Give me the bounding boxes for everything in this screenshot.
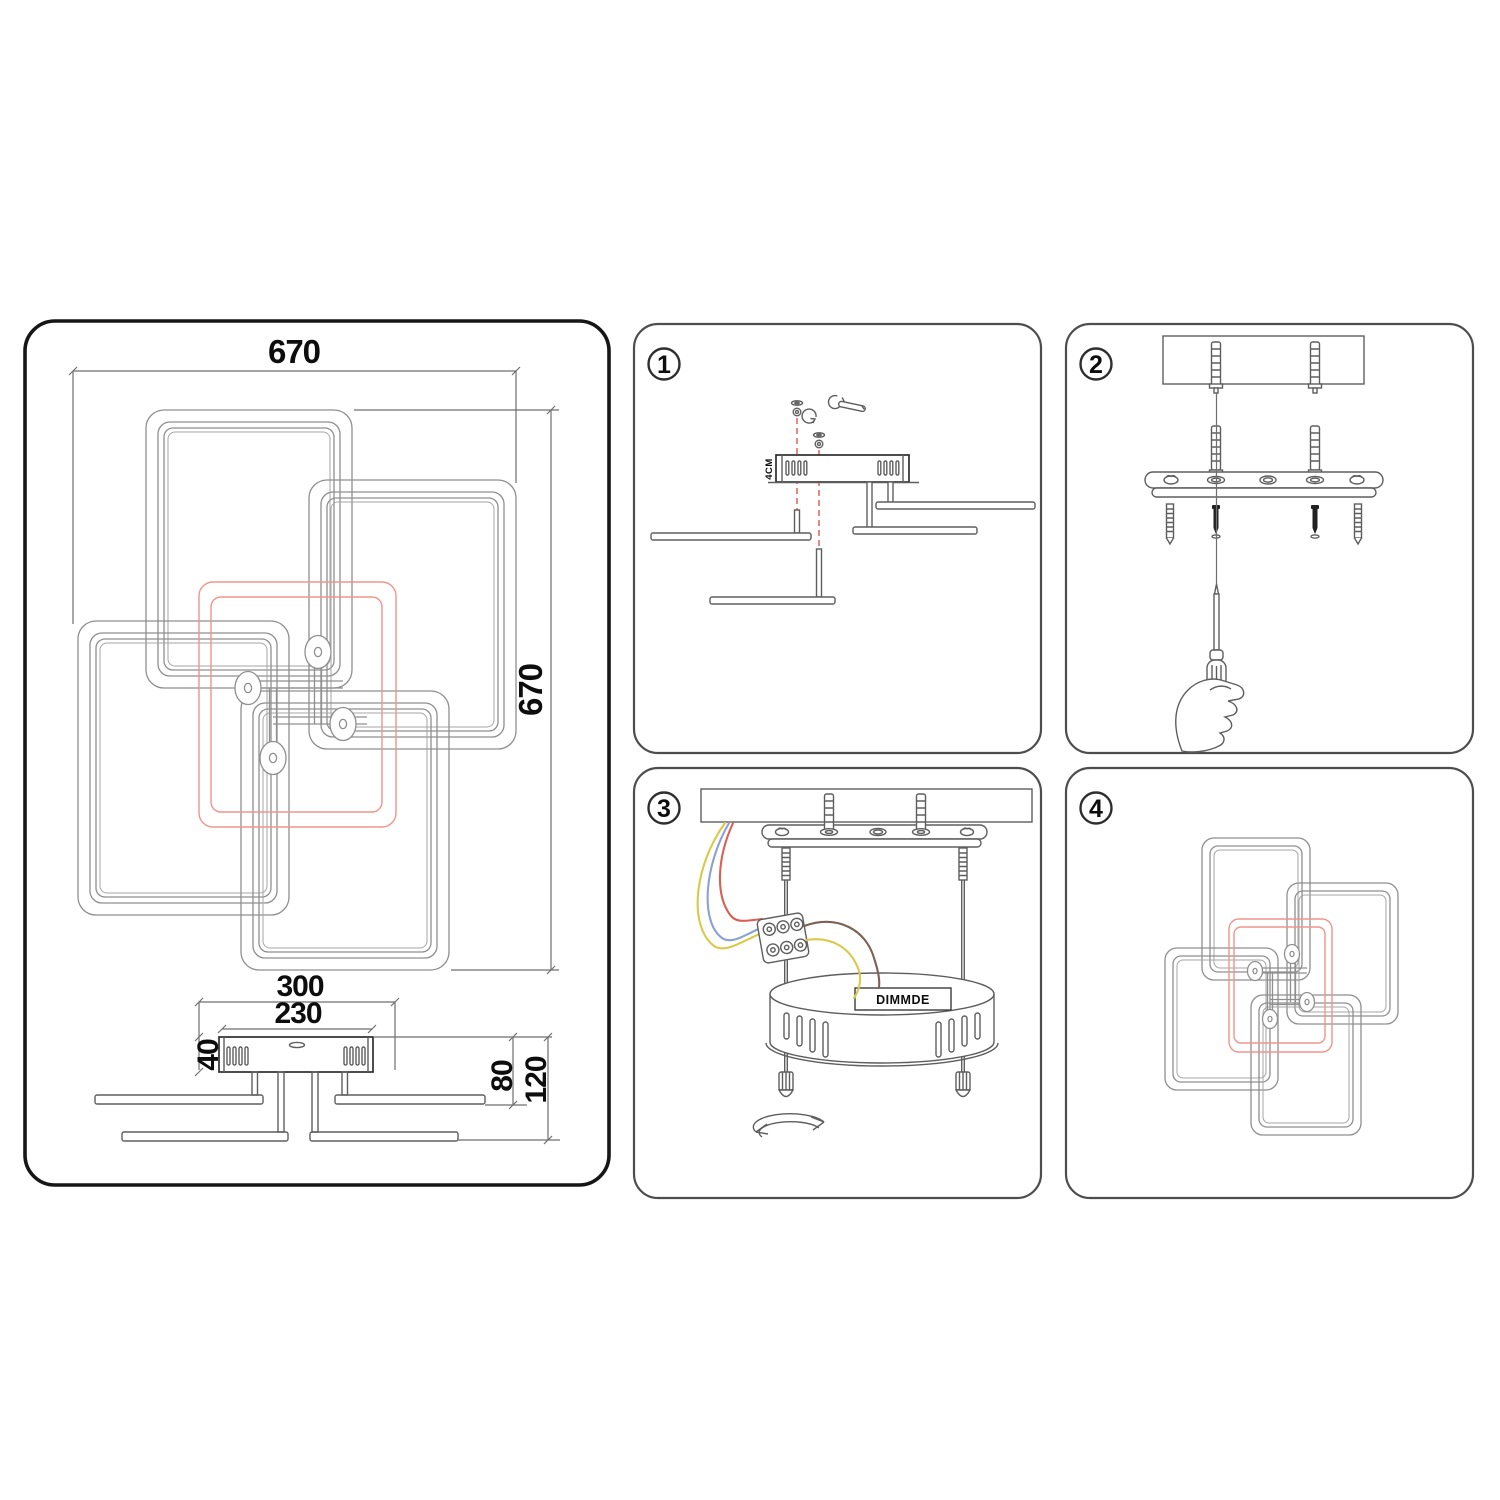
step-number-badge: 1: [649, 349, 680, 380]
threaded-studs: [1167, 504, 1362, 544]
wall-plug-dowels-loose: [1210, 426, 1322, 474]
panel-step-2: 2: [1064, 322, 1475, 755]
canopy-box: [219, 1037, 373, 1072]
side-view: 300 230 40: [95, 970, 560, 1144]
canopy-box: 4CM: [764, 455, 919, 483]
arms: [651, 482, 1035, 604]
instruction-sheet: 670 670: [0, 0, 1500, 1500]
mounting-bracket: [762, 794, 987, 847]
step-number-badge: 3: [649, 793, 680, 824]
wall-plug-dowels-ceiling: [1210, 342, 1322, 393]
dim-drop-lower-label: 120: [520, 1056, 553, 1103]
mounting-bracket: [1145, 472, 1383, 497]
cap-nuts: [779, 1072, 970, 1097]
dim-height-label: 670: [512, 664, 549, 716]
dim-canopy-label: 230: [274, 997, 321, 1030]
svg-text:3: 3: [657, 795, 671, 823]
screws: [1212, 505, 1319, 538]
arms-side-view: [95, 1072, 485, 1141]
panel-step-1: 1: [632, 322, 1043, 755]
svg-text:1: 1: [657, 351, 671, 379]
svg-text:2: 2: [1089, 351, 1103, 379]
step-number-badge: 2: [1081, 349, 1112, 380]
svg-text:4: 4: [1089, 795, 1103, 823]
driver-label: DIMMDE: [876, 993, 930, 1007]
dim-drop-upper-label: 80: [486, 1060, 519, 1092]
panel-step-4: 4: [1064, 766, 1475, 1200]
panel-dimensions: 670 670: [22, 318, 612, 1188]
ceiling: [701, 789, 1032, 822]
hand-icon: [1176, 679, 1244, 752]
canopy-depth-note: 4CM: [764, 458, 775, 480]
ceiling: [1163, 336, 1364, 384]
dim-width-label: 670: [268, 333, 320, 370]
supply-wires: [698, 823, 763, 948]
driver-canopy: DIMMDE: [766, 973, 998, 1066]
wrench-icon: [827, 392, 867, 415]
dimension-height: 670: [354, 406, 559, 974]
terminal-block: [757, 912, 810, 963]
step-number-badge: 4: [1081, 793, 1112, 824]
rotation-arrow-icon: [753, 1114, 824, 1137]
panel-step-3: 3: [632, 766, 1043, 1200]
frame-square-bottom-left: [78, 621, 289, 915]
red-center-frame: [199, 582, 396, 827]
red-center-frame: [1229, 919, 1332, 1052]
dimension-width: 670: [69, 333, 520, 624]
panel-border: [1066, 324, 1473, 753]
dim-canopy-height-label: 40: [192, 1039, 225, 1071]
